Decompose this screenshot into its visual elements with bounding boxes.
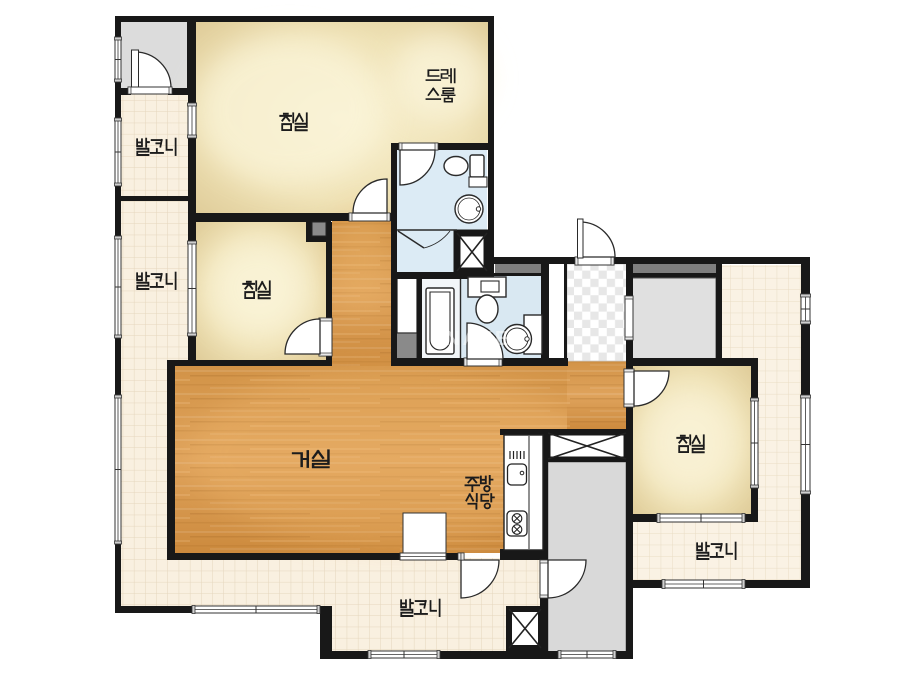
- svg-text:NAVER: NAVER: [445, 328, 529, 350]
